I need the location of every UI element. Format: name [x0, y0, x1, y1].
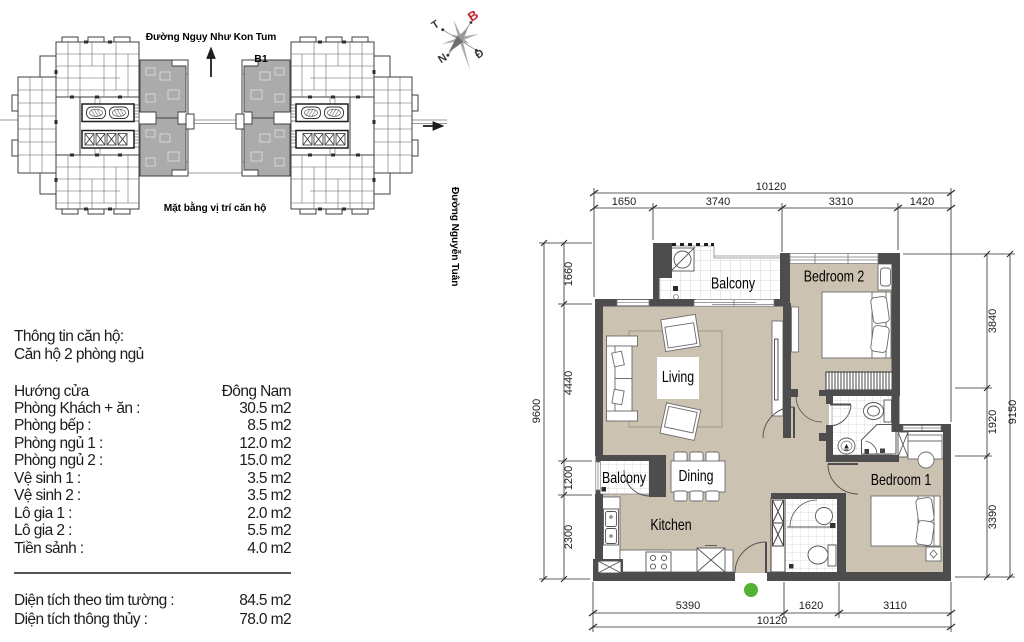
svg-text:15.0 m2: 15.0 m2 — [239, 452, 291, 469]
svg-text:Đông Nam: Đông Nam — [222, 383, 291, 400]
svg-text:78.0 m2: 78.0 m2 — [239, 611, 291, 628]
svg-text:Lô gia 1 :: Lô gia 1 : — [14, 505, 72, 522]
svg-text:3.5 m2: 3.5 m2 — [247, 470, 291, 487]
svg-text:Bedroom 2: Bedroom 2 — [804, 267, 865, 285]
svg-text:Diện tích thông thủy :: Diện tích thông thủy : — [14, 611, 147, 628]
svg-text:1920: 1920 — [987, 410, 999, 434]
svg-text:9600: 9600 — [531, 399, 543, 423]
svg-text:1660: 1660 — [563, 262, 575, 286]
svg-text:3740: 3740 — [706, 196, 730, 208]
svg-text:Kitchen: Kitchen — [650, 516, 691, 534]
svg-text:5.5 m2: 5.5 m2 — [247, 522, 291, 539]
svg-text:Living: Living — [662, 368, 694, 386]
svg-text:4440: 4440 — [563, 371, 575, 395]
svg-text:10120: 10120 — [757, 615, 788, 627]
svg-text:Vệ sinh 2 :: Vệ sinh 2 : — [14, 487, 81, 504]
svg-text:Balcony: Balcony — [711, 274, 755, 292]
svg-text:9150: 9150 — [1007, 400, 1019, 424]
svg-text:1650: 1650 — [612, 196, 636, 208]
svg-text:84.5 m2: 84.5 m2 — [239, 592, 291, 609]
svg-text:8.5 m2: 8.5 m2 — [247, 417, 291, 434]
svg-text:Mặt bằng vị trí căn hộ: Mặt bằng vị trí căn hộ — [164, 201, 267, 214]
svg-text:Đường Nguyễn Tuân: Đường Nguyễn Tuân — [449, 187, 462, 286]
svg-text:B1: B1 — [254, 53, 268, 65]
svg-text:Lô gia 2 :: Lô gia 2 : — [14, 522, 72, 539]
svg-text:Tiền sảnh :: Tiền sảnh : — [14, 540, 84, 557]
svg-text:Phòng Khách + ăn :: Phòng Khách + ăn : — [14, 400, 140, 417]
svg-text:1620: 1620 — [799, 600, 823, 612]
svg-text:Đường Ngụy Như Kon Tum: Đường Ngụy Như Kon Tum — [146, 32, 277, 43]
svg-text:Vệ sinh 1 :: Vệ sinh 1 : — [14, 470, 81, 487]
svg-text:30.5 m2: 30.5 m2 — [239, 400, 291, 417]
svg-text:Dining: Dining — [678, 467, 713, 485]
svg-text:Phòng ngủ 1 :: Phòng ngủ 1 : — [14, 435, 103, 452]
svg-text:Phòng ngủ 2 :: Phòng ngủ 2 : — [14, 452, 103, 469]
svg-text:Hướng cửa: Hướng cửa — [14, 383, 90, 400]
svg-text:3310: 3310 — [829, 196, 853, 208]
svg-text:3390: 3390 — [987, 505, 999, 529]
svg-text:3110: 3110 — [883, 600, 907, 612]
svg-text:2300: 2300 — [563, 525, 575, 549]
svg-text:4.0 m2: 4.0 m2 — [247, 540, 291, 557]
svg-text:2.0 m2: 2.0 m2 — [247, 505, 291, 522]
svg-text:10120: 10120 — [756, 181, 787, 193]
svg-text:12.0 m2: 12.0 m2 — [239, 435, 291, 452]
svg-text:Căn hộ 2 phòng ngủ: Căn hộ 2 phòng ngủ — [14, 346, 144, 363]
svg-text:5390: 5390 — [676, 600, 700, 612]
svg-text:Balcony: Balcony — [602, 469, 646, 487]
svg-text:1420: 1420 — [910, 196, 934, 208]
svg-text:1200: 1200 — [563, 466, 575, 490]
svg-text:3840: 3840 — [987, 309, 999, 333]
svg-text:Thông tin căn hộ:: Thông tin căn hộ: — [14, 328, 124, 345]
svg-text:Bedroom 1: Bedroom 1 — [871, 471, 932, 489]
svg-text:3.5 m2: 3.5 m2 — [247, 487, 291, 504]
svg-text:Diện tích theo tim tường :: Diện tích theo tim tường : — [14, 592, 174, 609]
svg-text:Phòng bếp :: Phòng bếp : — [14, 417, 91, 434]
